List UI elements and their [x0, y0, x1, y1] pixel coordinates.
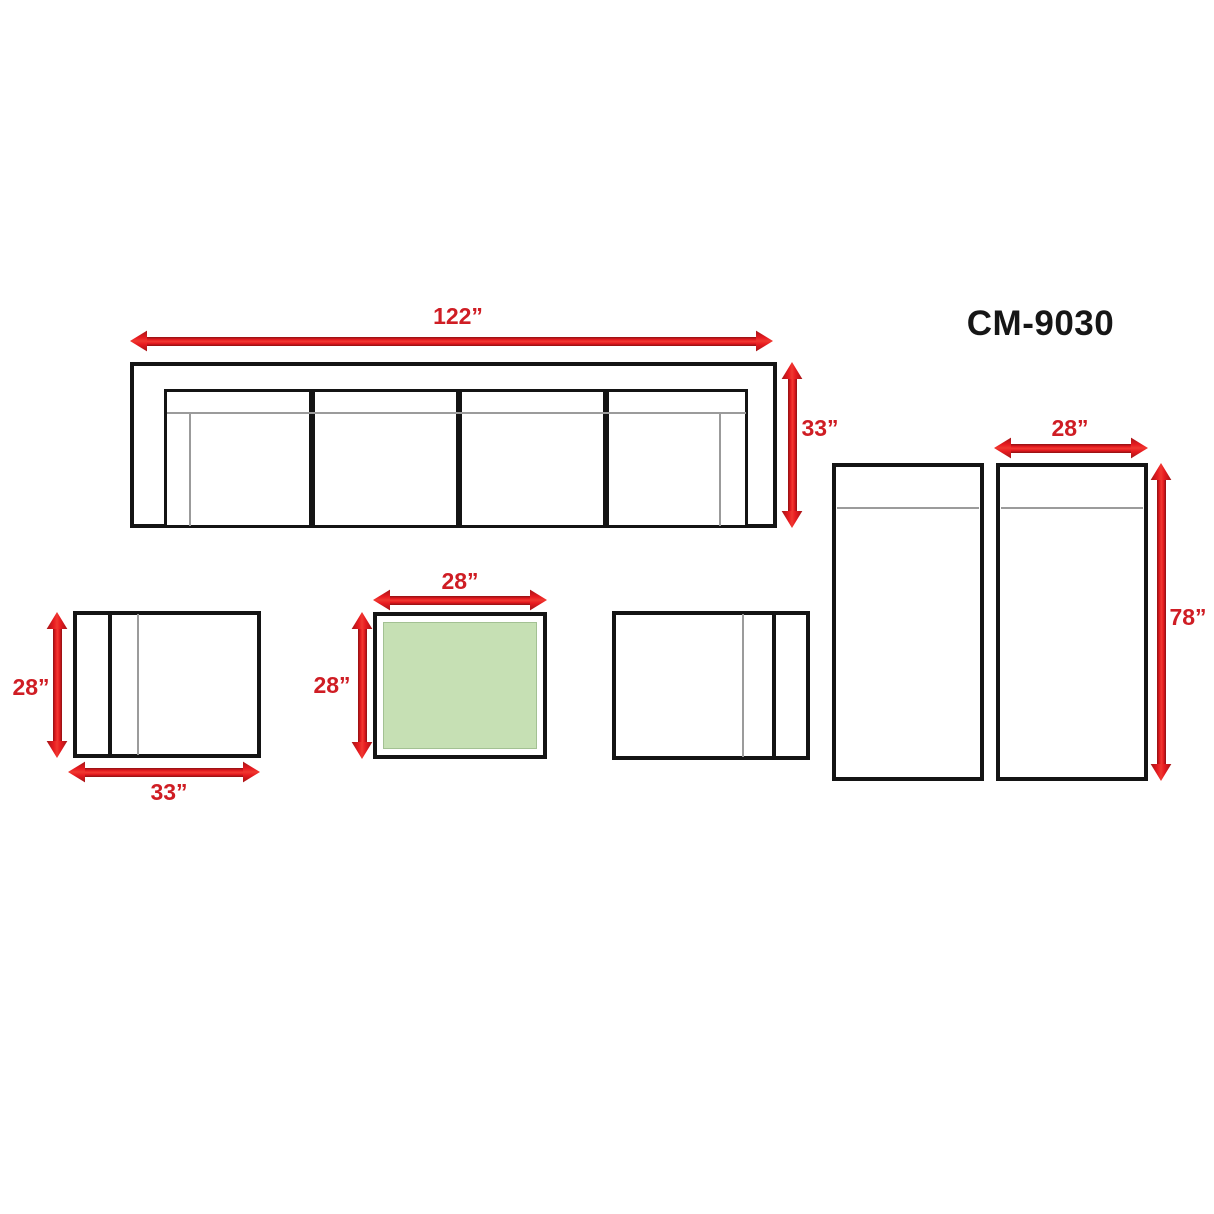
sofa-cushion-2 [312, 389, 459, 528]
arrow-up-head-icon [1150, 463, 1172, 480]
chaise-length-label: 78” [1163, 604, 1213, 630]
arrow-down-head-icon [46, 741, 68, 758]
sofa-cushion-1 [164, 389, 312, 528]
arrow-left-head-icon [130, 330, 147, 352]
coffee-table-glass-top [383, 622, 537, 749]
arrow-shaft [788, 379, 797, 511]
arrow-shaft [1011, 444, 1131, 453]
arrow-up-head-icon [351, 612, 373, 629]
corner-table-left-detail-line [137, 614, 139, 755]
arrow-left-head-icon [994, 437, 1011, 459]
sofa-seat-line [167, 412, 746, 414]
arrow-left-head-icon [373, 589, 390, 611]
sofa-cushion-3 [459, 389, 606, 528]
corner-table-right-arm-divider [772, 614, 776, 757]
model-number-title: CM-9030 [958, 305, 1123, 343]
chaise-left-pillow-line [837, 507, 979, 509]
sofa-depth-label: 33” [790, 415, 850, 441]
corner-table-left-arm-divider [108, 614, 112, 755]
arrow-right-head-icon [530, 589, 547, 611]
arrow-down-head-icon [781, 511, 803, 528]
arrow-down-head-icon [1150, 764, 1172, 781]
sofa-cushion-4 [606, 389, 748, 528]
sofa-armrest-line-left [189, 413, 191, 526]
arrow-down-head-icon [351, 742, 373, 759]
corner-table-left-depth-label: 28” [4, 674, 58, 700]
chaise-right-pillow-line [1001, 507, 1143, 509]
arrow-up-head-icon [781, 362, 803, 379]
chaise-lounge-right [996, 463, 1148, 781]
chaise-width-label: 28” [1040, 415, 1100, 441]
sofa-width-arrow [130, 330, 773, 352]
arrow-right-head-icon [243, 761, 260, 783]
corner-table-right-detail-line [742, 614, 744, 757]
coffee-table-width-label: 28” [430, 568, 490, 594]
sofa-width-label: 122” [388, 303, 528, 329]
corner-table-left-outline [73, 611, 261, 758]
sofa-depth-arrow [781, 362, 803, 528]
arrow-right-head-icon [756, 330, 773, 352]
coffee-table-depth-label: 28” [304, 672, 360, 698]
chaise-lounge-left [832, 463, 984, 781]
arrow-right-head-icon [1131, 437, 1148, 459]
arrow-shaft [85, 768, 243, 777]
sofa-armrest-line-right [719, 413, 721, 526]
arrow-left-head-icon [68, 761, 85, 783]
corner-table-left-width-label: 33” [139, 779, 199, 805]
arrow-up-head-icon [46, 612, 68, 629]
coffee-table-outline [373, 612, 547, 759]
corner-table-right-outline [612, 611, 810, 760]
arrow-shaft [390, 596, 530, 605]
furniture-dimension-diagram: CM-9030 122” 33” 28” 78” [0, 0, 1214, 1214]
arrow-shaft [147, 337, 756, 346]
